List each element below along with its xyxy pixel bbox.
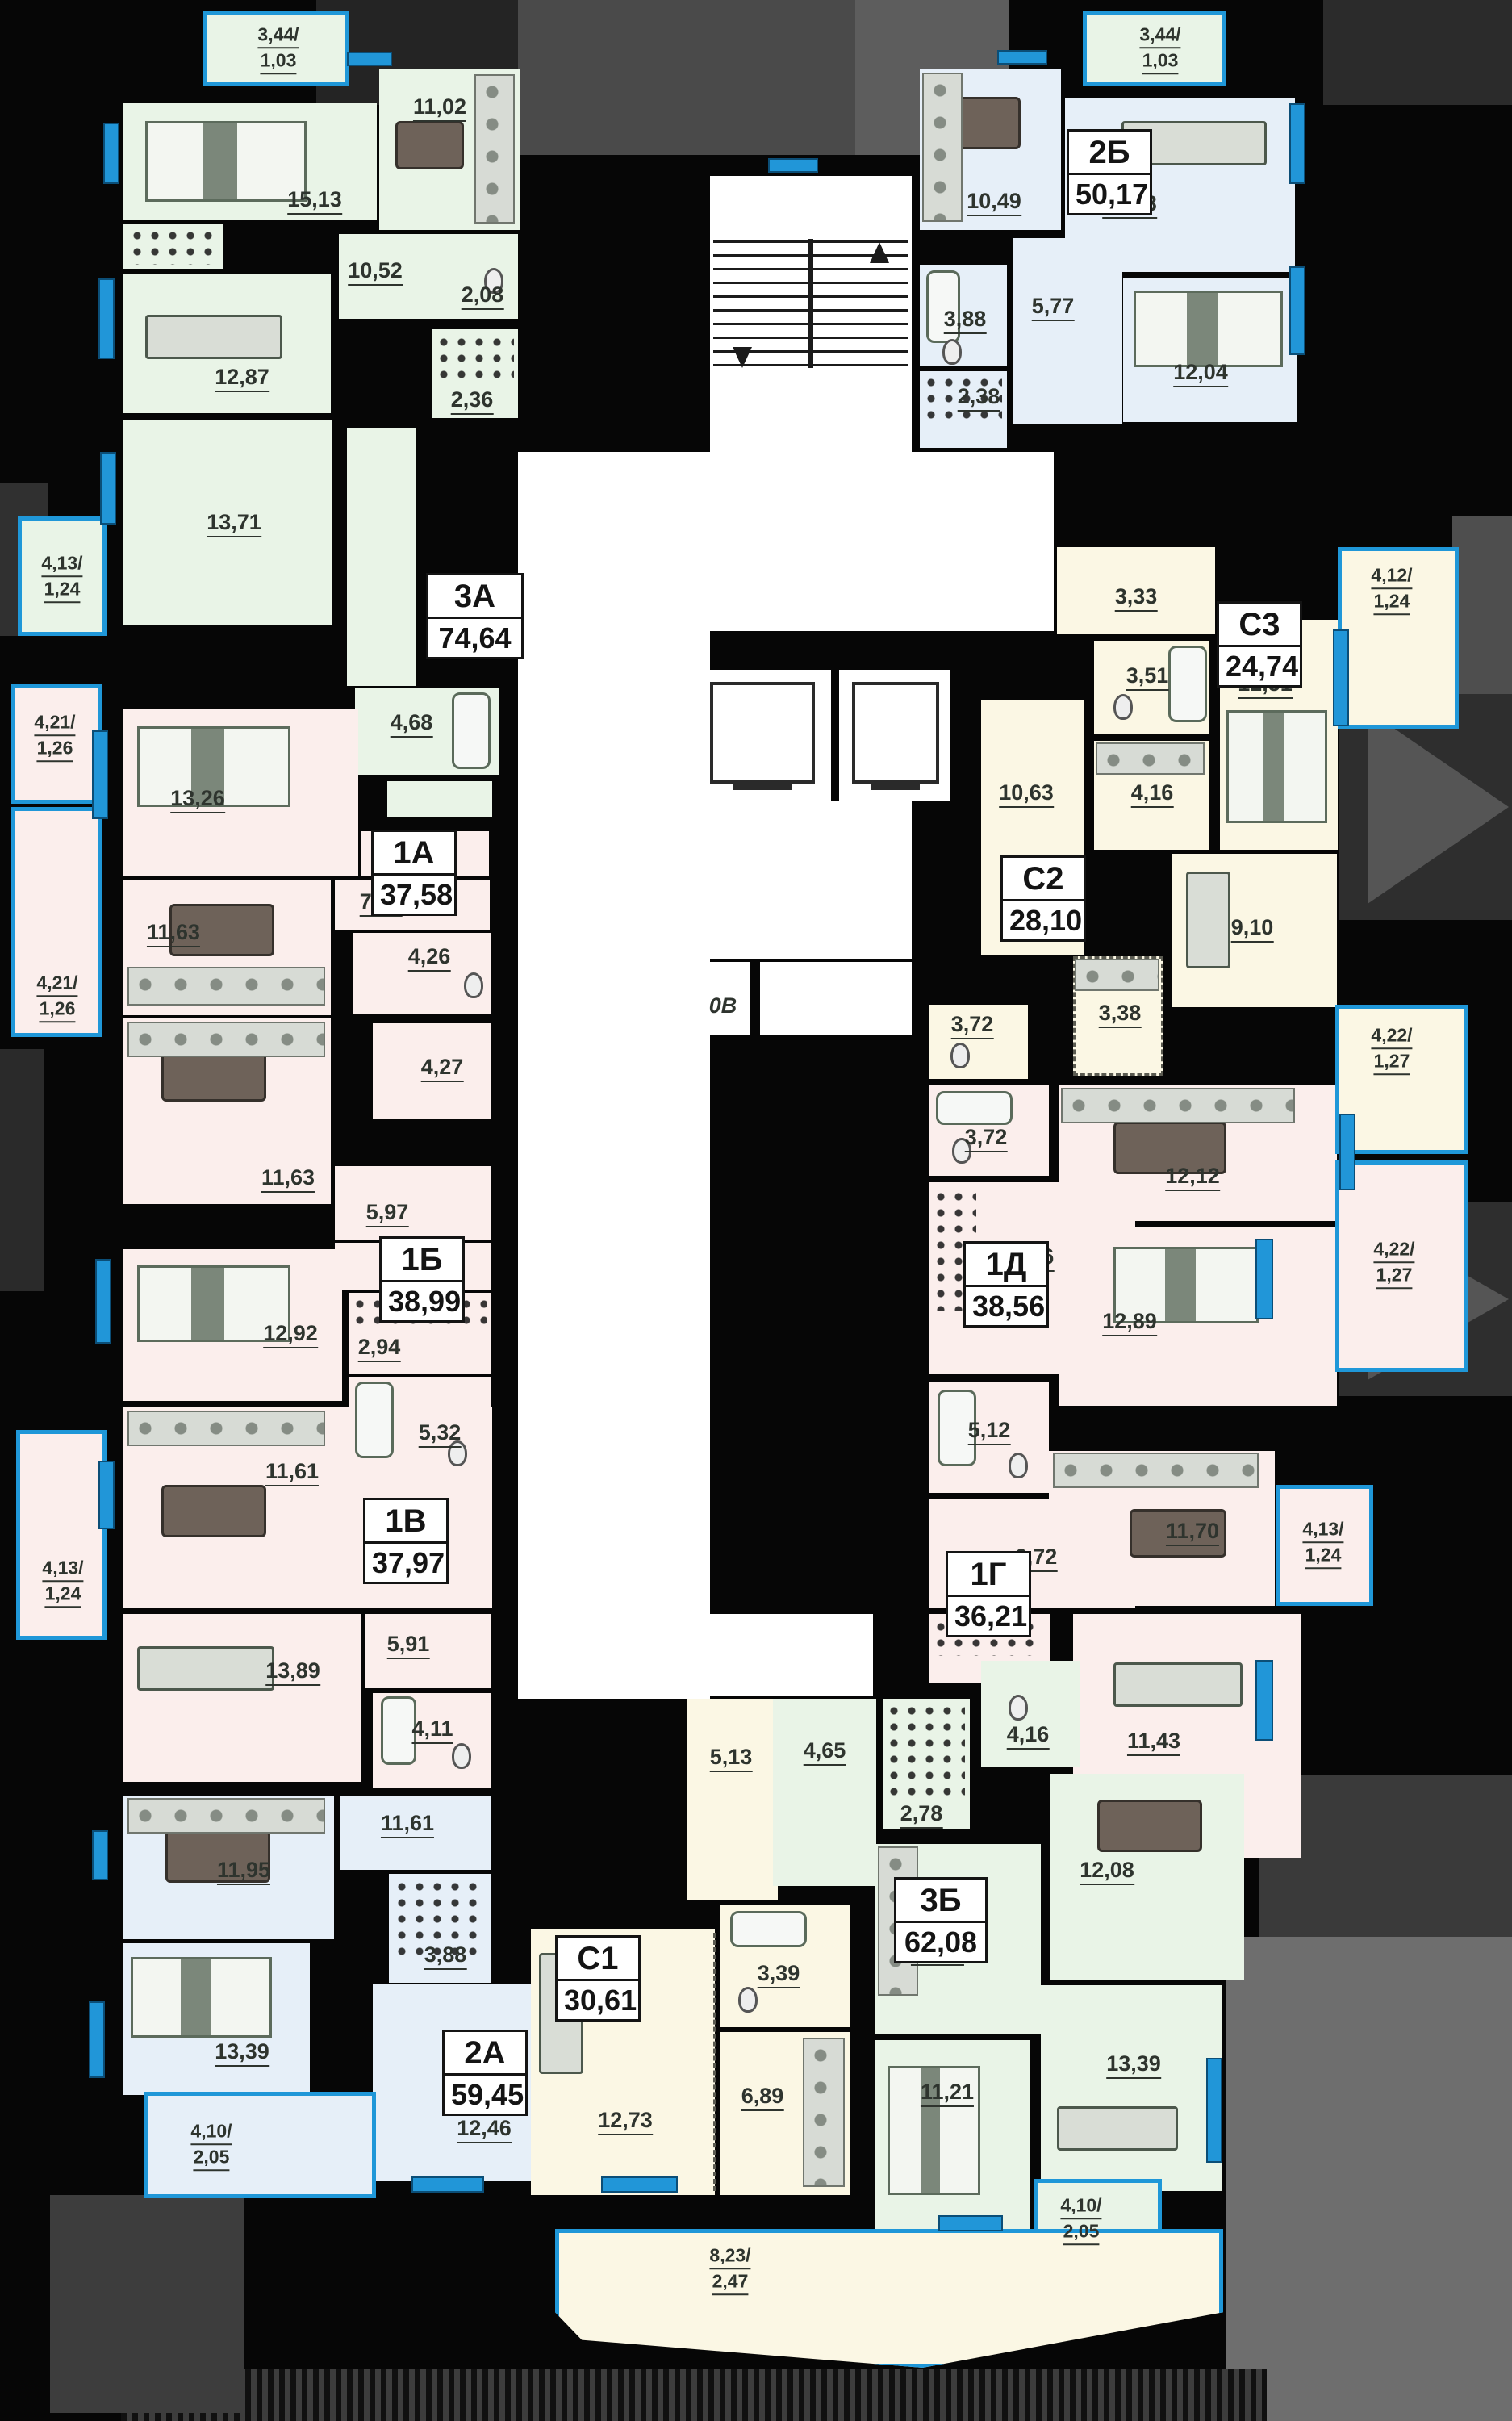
apartment-code: 2Б (1069, 132, 1150, 175)
window-glazing (1333, 629, 1349, 726)
window-glazing (103, 123, 119, 184)
balcony-label: 3,44/1,03 (257, 23, 299, 74)
room-area-label: 2,08 (462, 284, 504, 310)
sofa-icon (137, 1646, 274, 1691)
room-hall (687, 1699, 778, 1900)
apartment-area: 24,74 (1219, 647, 1300, 685)
room-area-label: 3,39 (758, 1963, 800, 1988)
utility-room (760, 962, 912, 1035)
apartment-card-1b[interactable]: 1Б 38,99 (379, 1236, 465, 1323)
window-glazing (98, 1461, 115, 1529)
apartment-card-s3[interactable]: С3 24,74 (1217, 601, 1302, 688)
balcony-label: 4,10/2,05 (190, 2119, 232, 2171)
room-area-label: 5,32 (419, 1422, 462, 1448)
dining-table-icon (1097, 1800, 1202, 1852)
room-area-label: 4,65 (804, 1740, 846, 1766)
window-glazing (1255, 1239, 1273, 1319)
room-area-label: 11,70 (1166, 1520, 1219, 1546)
window-glazing (1339, 1114, 1355, 1190)
room-area-label: 3,88 (424, 1944, 467, 1970)
apartment-area: 50,17 (1069, 175, 1150, 213)
apartment-code: 3Б (896, 1880, 985, 1923)
room-area-label: 4,68 (391, 712, 433, 738)
window-glazing (1289, 266, 1305, 355)
room-hallway (347, 428, 416, 686)
room-area-label: 11,02 (413, 96, 466, 122)
room-area-label: 13,39 (215, 2041, 269, 2067)
wardrobe-icons (888, 1704, 965, 1801)
toilet-icon (1113, 694, 1133, 720)
apartment-card-1v[interactable]: 1В 37,97 (363, 1498, 449, 1584)
toilet-icon (464, 972, 483, 998)
apartment-area: 38,56 (966, 1287, 1046, 1325)
toilet-icon (452, 1743, 471, 1769)
room-area-label: 3,38 (1099, 1002, 1142, 1028)
entrance-transom-window (768, 158, 818, 173)
room-area-label: 3,51 (1126, 665, 1169, 691)
apartment-area: 37,58 (374, 876, 454, 914)
sofa-icon (1186, 872, 1230, 968)
window-glazing (411, 2176, 484, 2193)
bathtub-icon (1168, 646, 1207, 722)
elevator-car (710, 682, 815, 784)
apartment-card-3a[interactable]: 3А 74,64 (426, 573, 524, 659)
room-area-label: 12,92 (263, 1323, 318, 1348)
toilet-icon (1009, 1695, 1028, 1721)
window-glazing (601, 2176, 678, 2193)
room-area-label: 11,63 (261, 1167, 315, 1193)
kitchen-counter-icon (1053, 1453, 1259, 1488)
kitchen-counter-icon (474, 74, 515, 224)
apartment-code: С2 (1003, 858, 1084, 901)
bathtub-icon (381, 1696, 416, 1765)
room-area-label: 15,13 (287, 189, 342, 215)
apartment-card-1g[interactable]: 1Г 36,21 (946, 1551, 1031, 1637)
balcony-label: 3,44/1,03 (1139, 23, 1180, 74)
sofa-icon (1057, 2106, 1178, 2151)
apartment-card-3b[interactable]: 3Б 62,08 (894, 1877, 988, 1963)
balcony (144, 2092, 376, 2198)
room-area-label: 13,71 (207, 512, 261, 537)
apartment-area: 59,45 (445, 2076, 525, 2114)
window-glazing (92, 730, 108, 819)
elevator-lobby (710, 801, 912, 959)
bed-icon (131, 1957, 272, 2038)
roof-plane (0, 1049, 44, 1291)
room-area-label: 11,43 (1127, 1730, 1180, 1756)
kitchen-counter-icon (803, 2038, 845, 2187)
window-glazing (98, 278, 115, 359)
room-area-label: 4,16 (1007, 1724, 1050, 1750)
apartment-area: 62,08 (896, 1923, 985, 1961)
toilet-icon (738, 1987, 758, 2013)
room-area-label: 3,72 (965, 1127, 1008, 1152)
window-glazing (95, 1259, 111, 1344)
room-hall (1013, 238, 1122, 424)
apartment-code: 1Д (966, 1244, 1046, 1287)
kitchen-counter-icon (127, 1411, 325, 1446)
apartment-card-s2[interactable]: С2 28,10 (1000, 855, 1086, 942)
room-area-label: 3,88 (944, 308, 987, 334)
room-area-label: 10,52 (348, 260, 403, 286)
roof-plane (50, 2195, 244, 2413)
room-area-label: 4,27 (421, 1056, 464, 1082)
room-area-label: 2,36 (451, 389, 494, 415)
bathtub-icon (936, 1091, 1013, 1125)
room-bathroom (981, 1661, 1080, 1767)
window-glazing (92, 1830, 108, 1880)
room-area-label: 12,46 (457, 2118, 512, 2143)
bed-icon (1134, 291, 1283, 367)
room-area-label: 12,89 (1102, 1311, 1157, 1336)
room-hall (773, 1699, 876, 1886)
room-area-label: 13,89 (265, 1660, 320, 1686)
toilet-icon (1009, 1453, 1028, 1478)
apartment-card-1a[interactable]: 1А 37,58 (371, 830, 457, 916)
room-area-label: 4,26 (408, 946, 451, 972)
dining-table-icon (395, 121, 464, 169)
roof-plane (1323, 0, 1512, 105)
apartment-area: 37,97 (365, 1544, 446, 1582)
kitchen-counter-icon (1061, 1088, 1295, 1123)
room-entry (387, 781, 492, 817)
balcony-label: 4,12/1,24 (1371, 563, 1412, 615)
room-area-label: 12,73 (598, 2109, 653, 2135)
apartment-code: 1В (365, 1500, 446, 1544)
apartment-code: 1Б (382, 1239, 462, 1282)
window-glazing (997, 50, 1047, 65)
window-glazing (347, 52, 392, 66)
apartment-area: 28,10 (1003, 901, 1084, 939)
room-area-label: 4,11 (411, 1718, 453, 1744)
room-hall (335, 1166, 491, 1240)
stair-down-arrow (733, 347, 752, 368)
room-area-label: 12,12 (1165, 1165, 1220, 1191)
bathtub-icon (355, 1382, 394, 1458)
apartment-card-2a[interactable]: 2А 59,45 (442, 2030, 528, 2116)
room-area-label: 11,95 (217, 1859, 270, 1885)
apartment-code: 2А (445, 2032, 525, 2076)
room-area-label: 5,13 (710, 1746, 753, 1772)
room-area-label: 12,87 (215, 366, 269, 392)
window-glazing (100, 452, 116, 525)
elevator-car (852, 682, 939, 784)
window-glazing (1289, 103, 1305, 184)
roof-plane (1226, 1937, 1512, 2421)
kitchen-counter-icon (127, 1022, 325, 1057)
room-area-label: 6,89 (741, 2085, 784, 2111)
balcony-label: 4,21/1,26 (36, 971, 77, 1022)
sofa-icon (1113, 1662, 1243, 1707)
kitchen-counter-icon (127, 967, 325, 1006)
room-area-label: 9,10 (1231, 917, 1274, 943)
room-area-label: 11,63 (147, 922, 200, 947)
room-living (123, 1614, 361, 1782)
room-area-label: 5,77 (1032, 295, 1075, 321)
toilet-icon (950, 1043, 970, 1068)
room-area-label: 12,04 (1173, 362, 1228, 387)
apartment-card-2b[interactable]: 2Б 50,17 (1067, 129, 1152, 215)
kitchen-counter-icon (922, 73, 963, 222)
apartment-area: 36,21 (948, 1597, 1029, 1635)
window-glazing (1206, 2058, 1222, 2163)
utility-label: 0В (709, 995, 737, 1019)
room-area-label: 2,94 (358, 1336, 401, 1362)
room-area-label: 2,38 (958, 386, 1000, 412)
room-area-label: 4,16 (1131, 782, 1174, 808)
balcony-label: 4,13/1,24 (41, 551, 82, 603)
apartment-card-1d[interactable]: 1Д 38,56 (963, 1241, 1049, 1328)
toilet-icon (942, 339, 962, 365)
sofa-icon (145, 315, 282, 359)
room-living (1041, 1985, 1222, 2191)
balcony-label: 4,13/1,24 (42, 1556, 83, 1608)
room-area-label: 10,63 (999, 782, 1054, 808)
apartment-code: 1А (374, 832, 454, 876)
room-area-label: 11,61 (381, 1813, 434, 1838)
apartment-area: 74,64 (428, 619, 521, 657)
window-glazing (938, 2215, 1003, 2231)
room-area-label: 13,26 (170, 788, 225, 813)
balcony-label: 4,13/1,24 (1302, 1517, 1343, 1569)
balcony-label: 8,23/2,47 (709, 2243, 750, 2295)
window-glazing (1255, 1660, 1273, 1741)
corridor (518, 1614, 873, 1696)
roof-plane (121, 2369, 1267, 2421)
kitchen-counter-icon (1075, 959, 1159, 991)
apartment-code: С1 (558, 1938, 638, 1981)
kitchen-counter-icon (1096, 742, 1205, 775)
window-glazing (89, 2001, 105, 2078)
apartment-code: 1Г (948, 1553, 1029, 1597)
room-area-label: 5,12 (968, 1420, 1011, 1445)
bed-icon (1226, 710, 1327, 823)
wardrobe-icons (131, 229, 218, 265)
floor-plan: 0В (0, 0, 1512, 2421)
bathtub-icon (730, 1911, 807, 1947)
wardrobe-icons (437, 336, 514, 384)
kitchen-counter-icon (127, 1798, 325, 1834)
stair-divider (808, 239, 813, 368)
stair-up-arrow (870, 242, 889, 263)
room-area-label: 12,08 (1080, 1859, 1134, 1885)
bathtub-icon (452, 692, 491, 769)
dining-table-icon (161, 1485, 266, 1537)
apartment-card-s1[interactable]: С1 30,61 (555, 1935, 641, 2022)
room-area-label: 13,39 (1106, 2053, 1161, 2079)
corridor (518, 452, 710, 1699)
balcony-label: 4,10/2,05 (1060, 2193, 1101, 2245)
apartment-area: 30,61 (558, 1981, 638, 2019)
apartment-code: С3 (1219, 604, 1300, 647)
balcony (555, 2229, 1223, 2368)
room-area-label: 10,49 (967, 190, 1021, 216)
apartment-area: 38,99 (382, 1282, 462, 1320)
balcony-label: 4,22/1,27 (1371, 1023, 1412, 1075)
room-area-label: 5,97 (366, 1202, 409, 1227)
room-area-label: 3,33 (1115, 586, 1158, 612)
room-area-label: 5,91 (387, 1633, 430, 1659)
zone-divider (713, 1933, 716, 2191)
balcony (16, 1430, 107, 1640)
apartment-code: 3А (428, 575, 521, 619)
bed-icon (145, 121, 307, 202)
room-area-label: 11,61 (265, 1461, 319, 1486)
room-area-label: 2,78 (900, 1803, 943, 1829)
room-area-label: 3,72 (951, 1014, 994, 1039)
balcony-label: 4,22/1,27 (1373, 1237, 1414, 1289)
room-area-label: 11,21 (921, 2081, 974, 2107)
balcony-label: 4,21/1,26 (34, 710, 75, 762)
